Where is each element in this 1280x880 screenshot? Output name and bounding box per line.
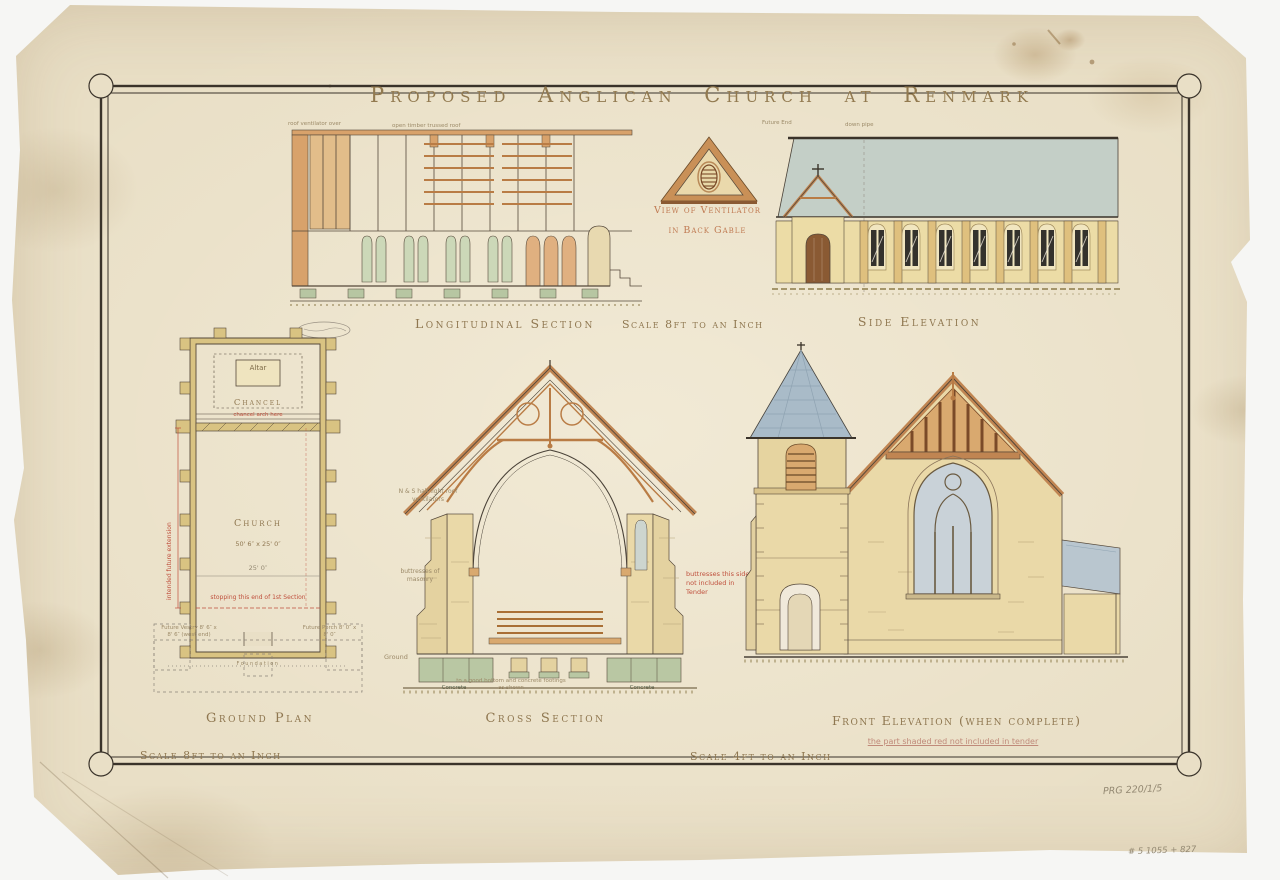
- cs-concrete-right-label: Concrete: [612, 685, 672, 692]
- plan-width-dim: 25' 0″: [233, 564, 283, 573]
- lean-to: [1062, 540, 1120, 654]
- cs-footing-note: to a good bottom and concrete footings a…: [455, 678, 567, 693]
- chancel-cross-wall: [196, 423, 320, 431]
- ground-plan-drawing: [148, 324, 373, 709]
- plan-future-vestry-note: Future Vestry 8' 6″ x 8' 6″ (west end): [160, 625, 218, 640]
- tower: [746, 342, 856, 654]
- pews: [497, 612, 603, 633]
- plan-extension-red-note: intended future extension: [166, 430, 173, 600]
- side-elevation-drawing: [748, 124, 1133, 309]
- se-pencil-note-left: Future End: [762, 120, 822, 127]
- plan-future-porch-note: Future Porch 8' 0″ x 8' 0″: [302, 625, 357, 640]
- roof-truss: [427, 384, 673, 510]
- ground-plan-caption: Ground Plan: [195, 711, 325, 726]
- plan-church-label: Church: [218, 518, 298, 529]
- front-elevation-caption: Front Elevation (when complete): [832, 713, 1072, 728]
- belfry-louver: [786, 444, 816, 490]
- cross-section-caption: Cross Section: [483, 711, 608, 726]
- side-elevation-caption: Side Elevation: [852, 314, 987, 329]
- cross-section-scale: Scale 4ft to an Inch: [690, 750, 815, 763]
- plan-chancel-red-note: chancel arch here: [208, 412, 308, 419]
- longitudinal-section-caption: Longitudinal Section: [415, 316, 585, 331]
- nave-gable: [844, 372, 1062, 654]
- scanned-drawing-sheet: Proposed Anglican Church at Renmark: [0, 0, 1280, 880]
- ground-plan-scale: Scale 8ft to an Inch: [140, 749, 275, 762]
- plan-stopping-red-note: stopping this end of 1st Section: [198, 594, 318, 602]
- front-elevation-red-note: the part shaded red not included in tend…: [858, 737, 1048, 748]
- plan-altar-label: Altar: [228, 364, 288, 373]
- sheet-title: Proposed Anglican Church at Renmark: [370, 83, 930, 107]
- cross-section-drawing: [385, 362, 715, 704]
- plan-church-dims: 50' 6″ x 25' 0″: [213, 540, 303, 549]
- front-elevation-drawing: [728, 342, 1133, 692]
- longitudinal-section-drawing: [276, 118, 661, 318]
- plan-chancel-label: Chancel: [218, 398, 298, 408]
- cs-roof-note: N & S half light roof ventilators: [396, 488, 460, 504]
- ls-pencil-note-left: roof ventilator over: [288, 121, 358, 128]
- plan-foundation-label: Foundation: [226, 661, 290, 668]
- ls-pencil-note-right: open timber trussed roof: [392, 123, 512, 130]
- longitudinal-section-scale: Scale 8ft to an Inch: [622, 318, 757, 331]
- cs-ground-label: Ground: [384, 653, 424, 662]
- cs-buttress-note: buttresses of masonry: [392, 568, 448, 584]
- se-pencil-note-right: down pipe: [845, 122, 905, 129]
